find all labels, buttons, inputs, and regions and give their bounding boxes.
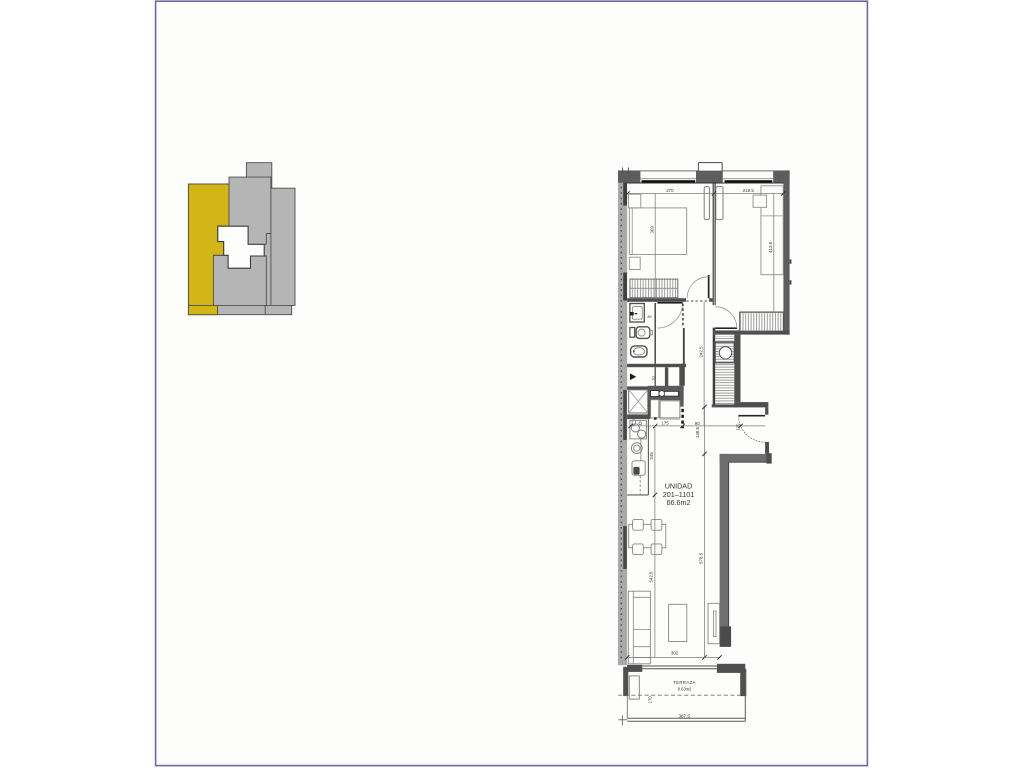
svg-text:413.5: 413.5 xyxy=(768,241,773,253)
svg-text:TERRAZA: TERRAZA xyxy=(673,680,696,685)
svg-text:90: 90 xyxy=(695,421,700,426)
svg-text:148.5: 148.5 xyxy=(695,427,700,439)
svg-text:309: 309 xyxy=(650,226,655,234)
svg-text:8.63m2: 8.63m2 xyxy=(678,687,692,692)
svg-text:175: 175 xyxy=(661,420,669,425)
svg-text:242.5: 242.5 xyxy=(698,346,703,358)
svg-text:66.6m2: 66.6m2 xyxy=(667,498,691,507)
svg-text:219.5: 219.5 xyxy=(743,188,755,193)
svg-text:542.5: 542.5 xyxy=(649,571,654,583)
svg-text:578.5: 578.5 xyxy=(699,552,704,564)
svg-text:270: 270 xyxy=(666,188,674,193)
svg-text:245: 245 xyxy=(649,452,654,460)
svg-text:89: 89 xyxy=(648,315,652,319)
svg-text:170: 170 xyxy=(648,696,653,704)
svg-text:302: 302 xyxy=(671,650,679,655)
svg-text:387.5: 387.5 xyxy=(678,713,690,718)
